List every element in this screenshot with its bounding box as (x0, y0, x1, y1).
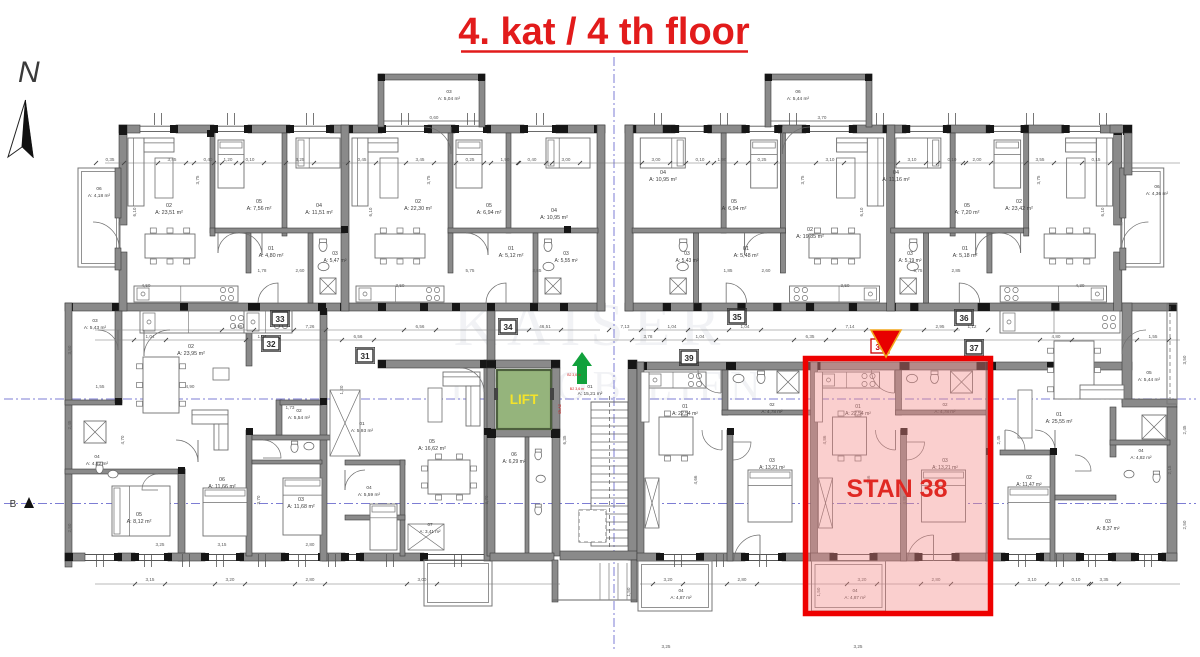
svg-text:3,10: 3,10 (826, 157, 835, 162)
svg-text:0,10: 0,10 (948, 157, 957, 162)
svg-text:02: 02 (807, 227, 813, 233)
svg-text:02: 02 (1016, 199, 1022, 205)
svg-text:1,55: 1,55 (1149, 334, 1158, 339)
svg-text:1,04: 1,04 (696, 334, 705, 339)
svg-text:03: 03 (92, 318, 98, 324)
svg-text:03: 03 (298, 497, 304, 503)
svg-text:4,90: 4,90 (186, 384, 195, 389)
svg-text:A: 5,47 m²: A: 5,47 m² (323, 258, 346, 264)
svg-text:3,15: 3,15 (146, 577, 155, 582)
svg-text:A: 10,95 m²: A: 10,95 m² (649, 177, 677, 183)
svg-text:A: 6,94 m²: A: 6,94 m² (477, 210, 502, 216)
svg-text:02: 02 (1026, 475, 1032, 481)
svg-text:2,60: 2,60 (296, 268, 305, 273)
svg-text:04: 04 (893, 170, 899, 176)
svg-text:A: 23,42 m²: A: 23,42 m² (1005, 206, 1033, 212)
svg-text:1,90: 1,90 (501, 157, 510, 162)
svg-text:A: 5,44 m²: A: 5,44 m² (1138, 377, 1161, 383)
svg-text:06: 06 (1154, 184, 1160, 190)
svg-text:2,85: 2,85 (952, 268, 961, 273)
svg-text:2,15: 2,15 (1167, 465, 1172, 474)
svg-text:3,25: 3,25 (854, 644, 863, 649)
svg-text:STAN 38: STAN 38 (847, 475, 948, 503)
svg-text:01: 01 (268, 246, 274, 252)
svg-text:01: 01 (1056, 412, 1062, 418)
svg-text:A: 5,48 m²: A: 5,48 m² (734, 253, 759, 259)
svg-text:3,00: 3,00 (652, 157, 661, 162)
svg-text:03: 03 (563, 251, 569, 257)
svg-text:A: 4,87 m²: A: 4,87 m² (670, 595, 692, 600)
svg-text:3,50: 3,50 (1182, 355, 1187, 364)
svg-text:7,26: 7,26 (306, 324, 315, 329)
svg-text:31: 31 (360, 352, 370, 361)
svg-text:3,75: 3,75 (800, 175, 805, 184)
svg-text:A: 11,68 m²: A: 11,68 m² (287, 504, 315, 510)
svg-text:1,04: 1,04 (146, 334, 155, 339)
svg-text:06: 06 (219, 477, 225, 483)
svg-text:A: 7,20 m²: A: 7,20 m² (955, 210, 980, 216)
svg-text:A: 13,21 m²: A: 13,21 m² (759, 465, 785, 471)
svg-text:07: 07 (427, 522, 433, 527)
svg-text:2,45: 2,45 (996, 435, 1001, 444)
svg-text:2,50: 2,50 (67, 523, 72, 532)
svg-text:2,45: 2,45 (67, 420, 72, 429)
svg-text:01: 01 (962, 246, 968, 252)
svg-text:2,95: 2,95 (936, 324, 945, 329)
svg-text:A: 10,95 m²: A: 10,95 m² (540, 215, 568, 221)
svg-text:6,10: 6,10 (859, 207, 864, 216)
svg-text:4,30: 4,30 (1076, 283, 1085, 288)
svg-text:3,45: 3,45 (168, 157, 177, 162)
svg-text:A: 5,43 m²: A: 5,43 m² (675, 258, 698, 264)
svg-text:A: 15,21 m²: A: 15,21 m² (578, 391, 603, 397)
svg-text:01: 01 (682, 404, 688, 410)
svg-text:03: 03 (769, 458, 775, 464)
svg-text:3,15: 3,15 (218, 542, 227, 547)
svg-text:01: 01 (508, 246, 514, 252)
svg-text:6,10: 6,10 (1100, 207, 1105, 216)
svg-text:0,40: 0,40 (528, 157, 537, 162)
svg-text:A: 22,30 m²: A: 22,30 m² (404, 206, 432, 212)
svg-text:3,50: 3,50 (67, 345, 72, 354)
svg-text:B2 3,6 m: B2 3,6 m (570, 387, 584, 391)
svg-text:02: 02 (769, 402, 775, 407)
svg-text:A: 4,18 m²: A: 4,18 m² (88, 193, 111, 199)
svg-text:03: 03 (684, 251, 690, 257)
svg-text:32: 32 (266, 340, 276, 349)
svg-text:6,56: 6,56 (354, 334, 363, 339)
svg-text:A: 5,19 m²: A: 5,19 m² (898, 258, 921, 264)
svg-text:0,25: 0,25 (758, 157, 767, 162)
svg-text:A: 11,51 m²: A: 11,51 m² (305, 210, 333, 216)
svg-text:3,45: 3,45 (416, 157, 425, 162)
svg-text:37: 37 (969, 344, 979, 353)
svg-text:0,60: 0,60 (430, 115, 439, 120)
svg-text:A: 16,62 m²: A: 16,62 m² (418, 446, 446, 452)
svg-text:3,00: 3,00 (562, 157, 571, 162)
svg-text:03: 03 (332, 251, 338, 257)
svg-text:4,80: 4,80 (1052, 334, 1061, 339)
svg-text:2,50: 2,50 (1182, 520, 1187, 529)
svg-text:0,40: 0,40 (204, 157, 213, 162)
svg-text:A: 4,82 m²: A: 4,82 m² (86, 461, 109, 467)
svg-text:06: 06 (511, 452, 517, 458)
svg-text:36: 36 (959, 314, 969, 323)
svg-text:N: N (18, 56, 40, 89)
svg-text:04: 04 (366, 485, 372, 491)
svg-text:A: 23,95 m²: A: 23,95 m² (177, 351, 205, 357)
svg-text:A: 23,51 m²: A: 23,51 m² (155, 210, 183, 216)
svg-text:B2 3,6 m: B2 3,6 m (567, 373, 581, 377)
svg-text:A: 5,54 m²: A: 5,54 m² (288, 415, 311, 421)
svg-text:05: 05 (1146, 370, 1152, 376)
svg-text:0,10: 0,10 (246, 157, 255, 162)
svg-text:3,55: 3,55 (1036, 157, 1045, 162)
svg-text:34: 34 (503, 323, 513, 332)
svg-text:A: 3,41 m²: A: 3,41 m² (419, 529, 441, 534)
svg-text:3,25: 3,25 (296, 157, 305, 162)
svg-text:5,75: 5,75 (914, 268, 923, 273)
svg-text:0,25: 0,25 (466, 157, 475, 162)
svg-text:03: 03 (446, 89, 452, 95)
svg-text:05: 05 (964, 203, 970, 209)
svg-text:0,35: 0,35 (106, 157, 115, 162)
svg-text:A: 5,44 m²: A: 5,44 m² (787, 96, 810, 102)
svg-text:4,50: 4,50 (142, 283, 151, 288)
svg-text:A: 4,78 m²: A: 4,78 m² (761, 409, 783, 414)
svg-text:A: 8,12 m²: A: 8,12 m² (127, 519, 152, 525)
svg-text:A: 5,12 m²: A: 5,12 m² (499, 253, 524, 259)
svg-text:04: 04 (316, 203, 322, 209)
svg-text:3,75: 3,75 (195, 175, 200, 184)
svg-text:04: 04 (660, 170, 666, 176)
svg-text:05: 05 (731, 199, 737, 205)
svg-text:7,13: 7,13 (621, 324, 630, 329)
svg-text:05: 05 (136, 512, 142, 518)
svg-text:3,75: 3,75 (1036, 175, 1041, 184)
svg-text:1,90: 1,90 (718, 157, 727, 162)
svg-text:03: 03 (907, 251, 913, 257)
svg-text:3,70: 3,70 (256, 495, 261, 504)
svg-text:2,00: 2,00 (973, 157, 982, 162)
svg-text:02: 02 (415, 199, 421, 205)
svg-text:1,04: 1,04 (668, 324, 677, 329)
svg-text:A: 5,93 m²: A: 5,93 m² (351, 428, 374, 434)
svg-text:1,12: 1,12 (968, 324, 977, 329)
svg-text:2,95: 2,95 (234, 324, 243, 329)
svg-text:3,35: 3,35 (1100, 577, 1109, 582)
svg-text:3,70: 3,70 (818, 115, 827, 120)
svg-text:3,78: 3,78 (644, 334, 653, 339)
svg-text:4. kat / 4 th floor: 4. kat / 4 th floor (458, 11, 750, 53)
svg-text:2,80: 2,80 (306, 542, 315, 547)
svg-text:3,10: 3,10 (1028, 577, 1037, 582)
svg-text:3,25: 3,25 (156, 542, 165, 547)
svg-text:04: 04 (678, 588, 684, 593)
svg-text:A: 6,94 m²: A: 6,94 m² (722, 206, 747, 212)
svg-text:A: 25,55 m²: A: 25,55 m² (1046, 419, 1073, 425)
svg-text:3,70: 3,70 (484, 495, 489, 504)
svg-text:0,10: 0,10 (1072, 577, 1081, 582)
svg-text:A: 4,80 m²: A: 4,80 m² (259, 253, 284, 259)
svg-text:02: 02 (296, 408, 302, 414)
svg-text:0,10: 0,10 (696, 157, 705, 162)
svg-text:06: 06 (795, 89, 801, 95)
svg-text:5,75: 5,75 (466, 268, 475, 273)
svg-text:0,45: 0,45 (358, 157, 367, 162)
svg-text:03: 03 (1105, 519, 1111, 525)
svg-text:1,55: 1,55 (96, 384, 105, 389)
svg-text:04: 04 (1138, 448, 1144, 453)
svg-text:6,10: 6,10 (368, 207, 373, 216)
svg-text:6,10: 6,10 (132, 207, 137, 216)
svg-text:1,20: 1,20 (224, 157, 233, 162)
svg-text:1,78: 1,78 (258, 268, 267, 273)
svg-text:2,80: 2,80 (306, 577, 315, 582)
svg-text:A: 7,56 m²: A: 7,56 m² (247, 206, 272, 212)
svg-text:4,70: 4,70 (120, 435, 125, 444)
svg-text:01: 01 (743, 246, 749, 252)
svg-text:3,50: 3,50 (841, 283, 850, 288)
svg-text:1,20: 1,20 (339, 385, 344, 394)
svg-text:46,51: 46,51 (539, 324, 551, 329)
svg-text:6,35: 6,35 (562, 435, 567, 444)
svg-text:2,45: 2,45 (1182, 425, 1187, 434)
svg-text:04: 04 (94, 454, 100, 460)
svg-text:A: 5,18 m²: A: 5,18 m² (953, 253, 978, 259)
svg-text:A: 4,36 m²: A: 4,36 m² (1146, 191, 1169, 197)
svg-text:2,60: 2,60 (762, 268, 771, 273)
svg-text:2,85: 2,85 (533, 268, 542, 273)
svg-text:B: B (10, 499, 17, 510)
svg-text:A: 5,59 m²: A: 5,59 m² (358, 492, 381, 498)
svg-text:3,20: 3,20 (664, 577, 673, 582)
svg-text:01: 01 (359, 421, 365, 427)
svg-text:3,20: 3,20 (226, 577, 235, 582)
svg-text:A: 5,04 m²: A: 5,04 m² (438, 96, 461, 102)
svg-text:1,50: 1,50 (626, 587, 631, 596)
svg-text:3,75: 3,75 (426, 175, 431, 184)
svg-text:02: 02 (166, 203, 172, 209)
svg-text:3,00: 3,00 (418, 577, 427, 582)
svg-text:A: 11,16 m²: A: 11,16 m² (882, 177, 910, 183)
svg-text:1,85: 1,85 (724, 268, 733, 273)
svg-text:05: 05 (486, 203, 492, 209)
svg-text:A: 19,85 m²: A: 19,85 m² (796, 234, 824, 240)
svg-text:2,80: 2,80 (738, 577, 747, 582)
svg-text:A: 5,55 m²: A: 5,55 m² (554, 258, 577, 264)
svg-text:3,10: 3,10 (908, 157, 917, 162)
svg-text:05: 05 (256, 199, 262, 205)
svg-text:IZLAZ: IZLAZ (558, 403, 562, 414)
svg-text:4,66: 4,66 (693, 475, 698, 484)
svg-text:7,14: 7,14 (846, 324, 855, 329)
svg-text:A: 8,37 m²: A: 8,37 m² (1096, 526, 1119, 532)
svg-text:06: 06 (96, 186, 102, 192)
svg-text:A: 22,54 m²: A: 22,54 m² (672, 411, 698, 417)
svg-text:39: 39 (684, 354, 694, 363)
svg-text:35: 35 (732, 313, 742, 322)
svg-text:02: 02 (188, 344, 194, 350)
svg-text:04: 04 (551, 208, 557, 214)
svg-text:3,50: 3,50 (396, 283, 405, 288)
svg-text:33: 33 (275, 315, 285, 324)
svg-text:A: 6,29 m²: A: 6,29 m² (502, 459, 525, 465)
svg-text:A: 11,66 m²: A: 11,66 m² (208, 484, 236, 490)
svg-text:3,25: 3,25 (662, 644, 671, 649)
svg-text:6,35: 6,35 (806, 334, 815, 339)
svg-text:6,56: 6,56 (416, 324, 425, 329)
svg-text:01: 01 (587, 384, 593, 390)
svg-text:05: 05 (429, 439, 435, 445)
svg-text:1,73: 1,73 (286, 405, 295, 410)
svg-text:0,15: 0,15 (1092, 157, 1101, 162)
svg-text:A: 4,82 m²: A: 4,82 m² (1130, 455, 1152, 460)
svg-text:LIFT: LIFT (510, 392, 539, 407)
svg-text:A: 11,47 m²: A: 11,47 m² (1016, 482, 1042, 488)
